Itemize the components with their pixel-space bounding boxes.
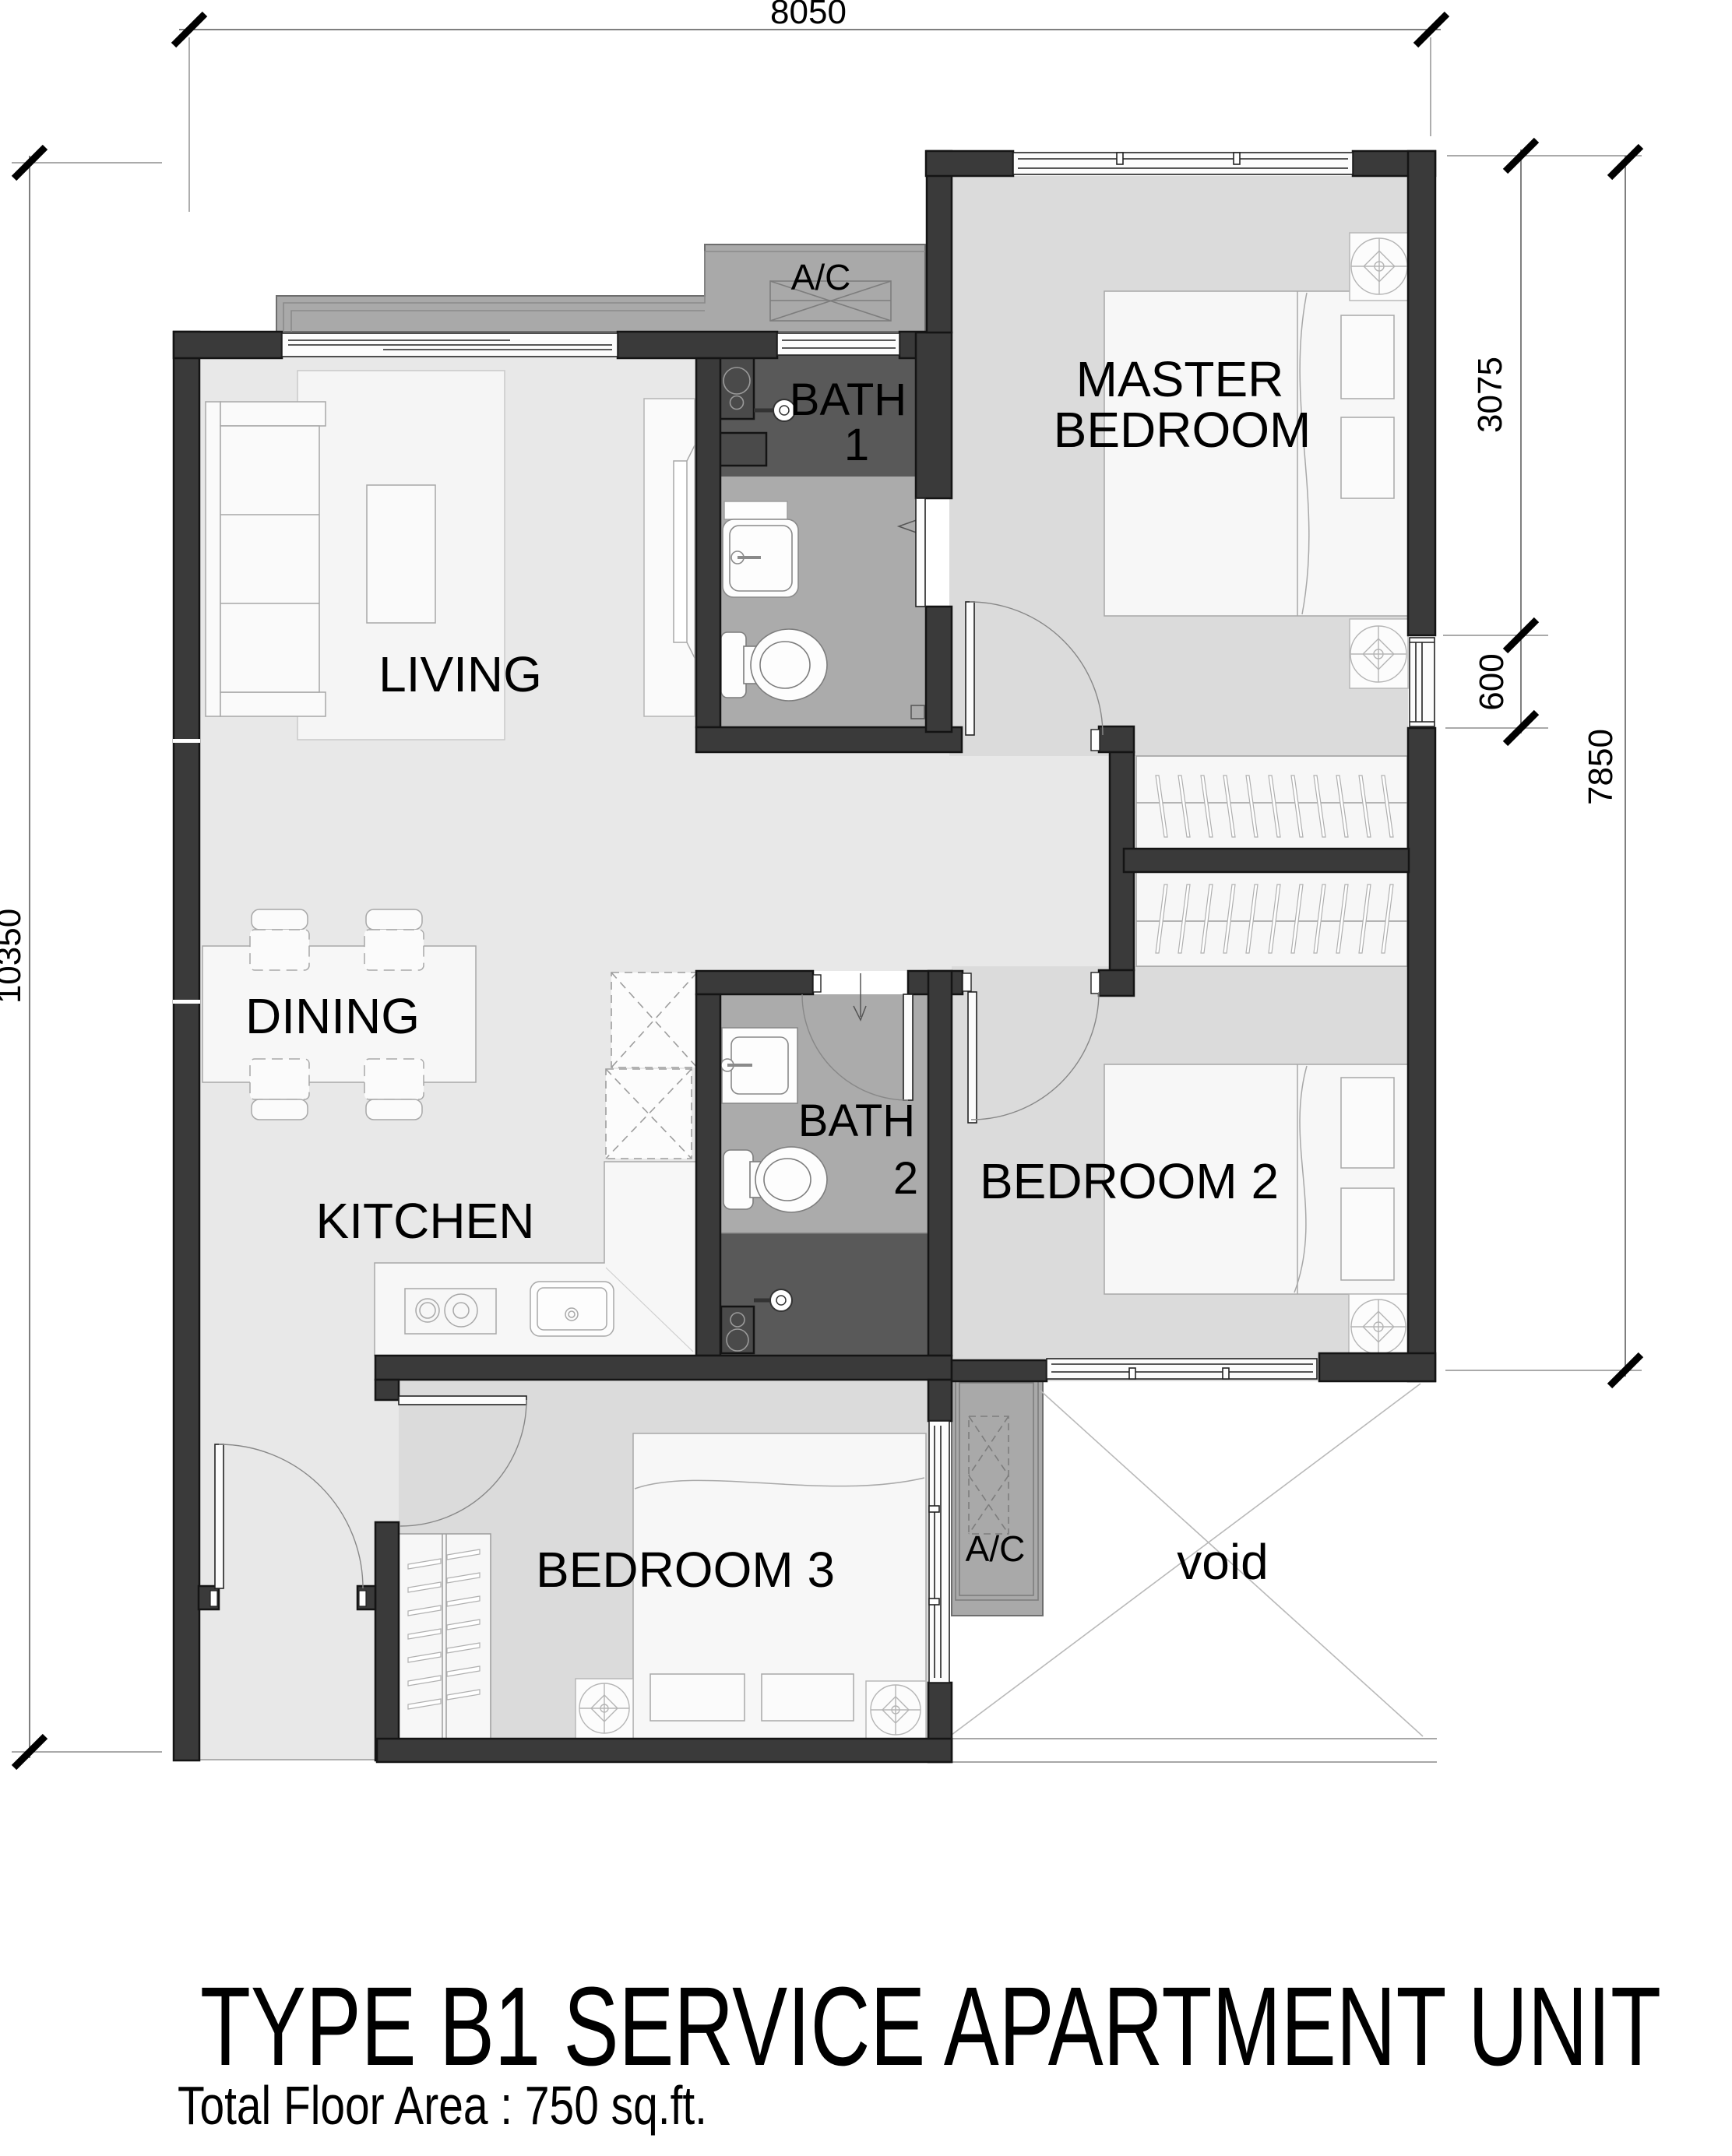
svg-text:BATH: BATH xyxy=(790,375,906,425)
svg-text:600: 600 xyxy=(1473,653,1511,710)
svg-text:LIVING: LIVING xyxy=(378,646,542,702)
svg-text:10350: 10350 xyxy=(0,909,28,1004)
svg-text:1: 1 xyxy=(844,420,869,470)
svg-text:A/C: A/C xyxy=(791,257,851,297)
svg-text:2: 2 xyxy=(893,1153,918,1204)
svg-text:BATH: BATH xyxy=(798,1096,915,1146)
svg-text:KITCHEN: KITCHEN xyxy=(316,1193,535,1249)
svg-text:BEDROOM: BEDROOM xyxy=(1054,402,1311,458)
svg-text:A/C: A/C xyxy=(966,1528,1026,1569)
svg-text:BEDROOM 3: BEDROOM 3 xyxy=(536,1542,835,1598)
svg-text:Total Floor Area : 750 sq.ft.: Total Floor Area : 750 sq.ft. xyxy=(178,2075,707,2136)
svg-text:TYPE B1 SERVICE APARTMENT UNIT: TYPE B1 SERVICE APARTMENT UNIT xyxy=(200,1964,1661,2089)
svg-text:3075: 3075 xyxy=(1471,357,1509,433)
svg-text:DINING: DINING xyxy=(245,988,420,1044)
svg-text:BEDROOM 2: BEDROOM 2 xyxy=(980,1153,1279,1209)
svg-text:void: void xyxy=(1177,1534,1268,1590)
svg-text:MASTER: MASTER xyxy=(1076,351,1284,407)
svg-text:7850: 7850 xyxy=(1582,729,1620,805)
svg-text:8050: 8050 xyxy=(770,0,847,31)
